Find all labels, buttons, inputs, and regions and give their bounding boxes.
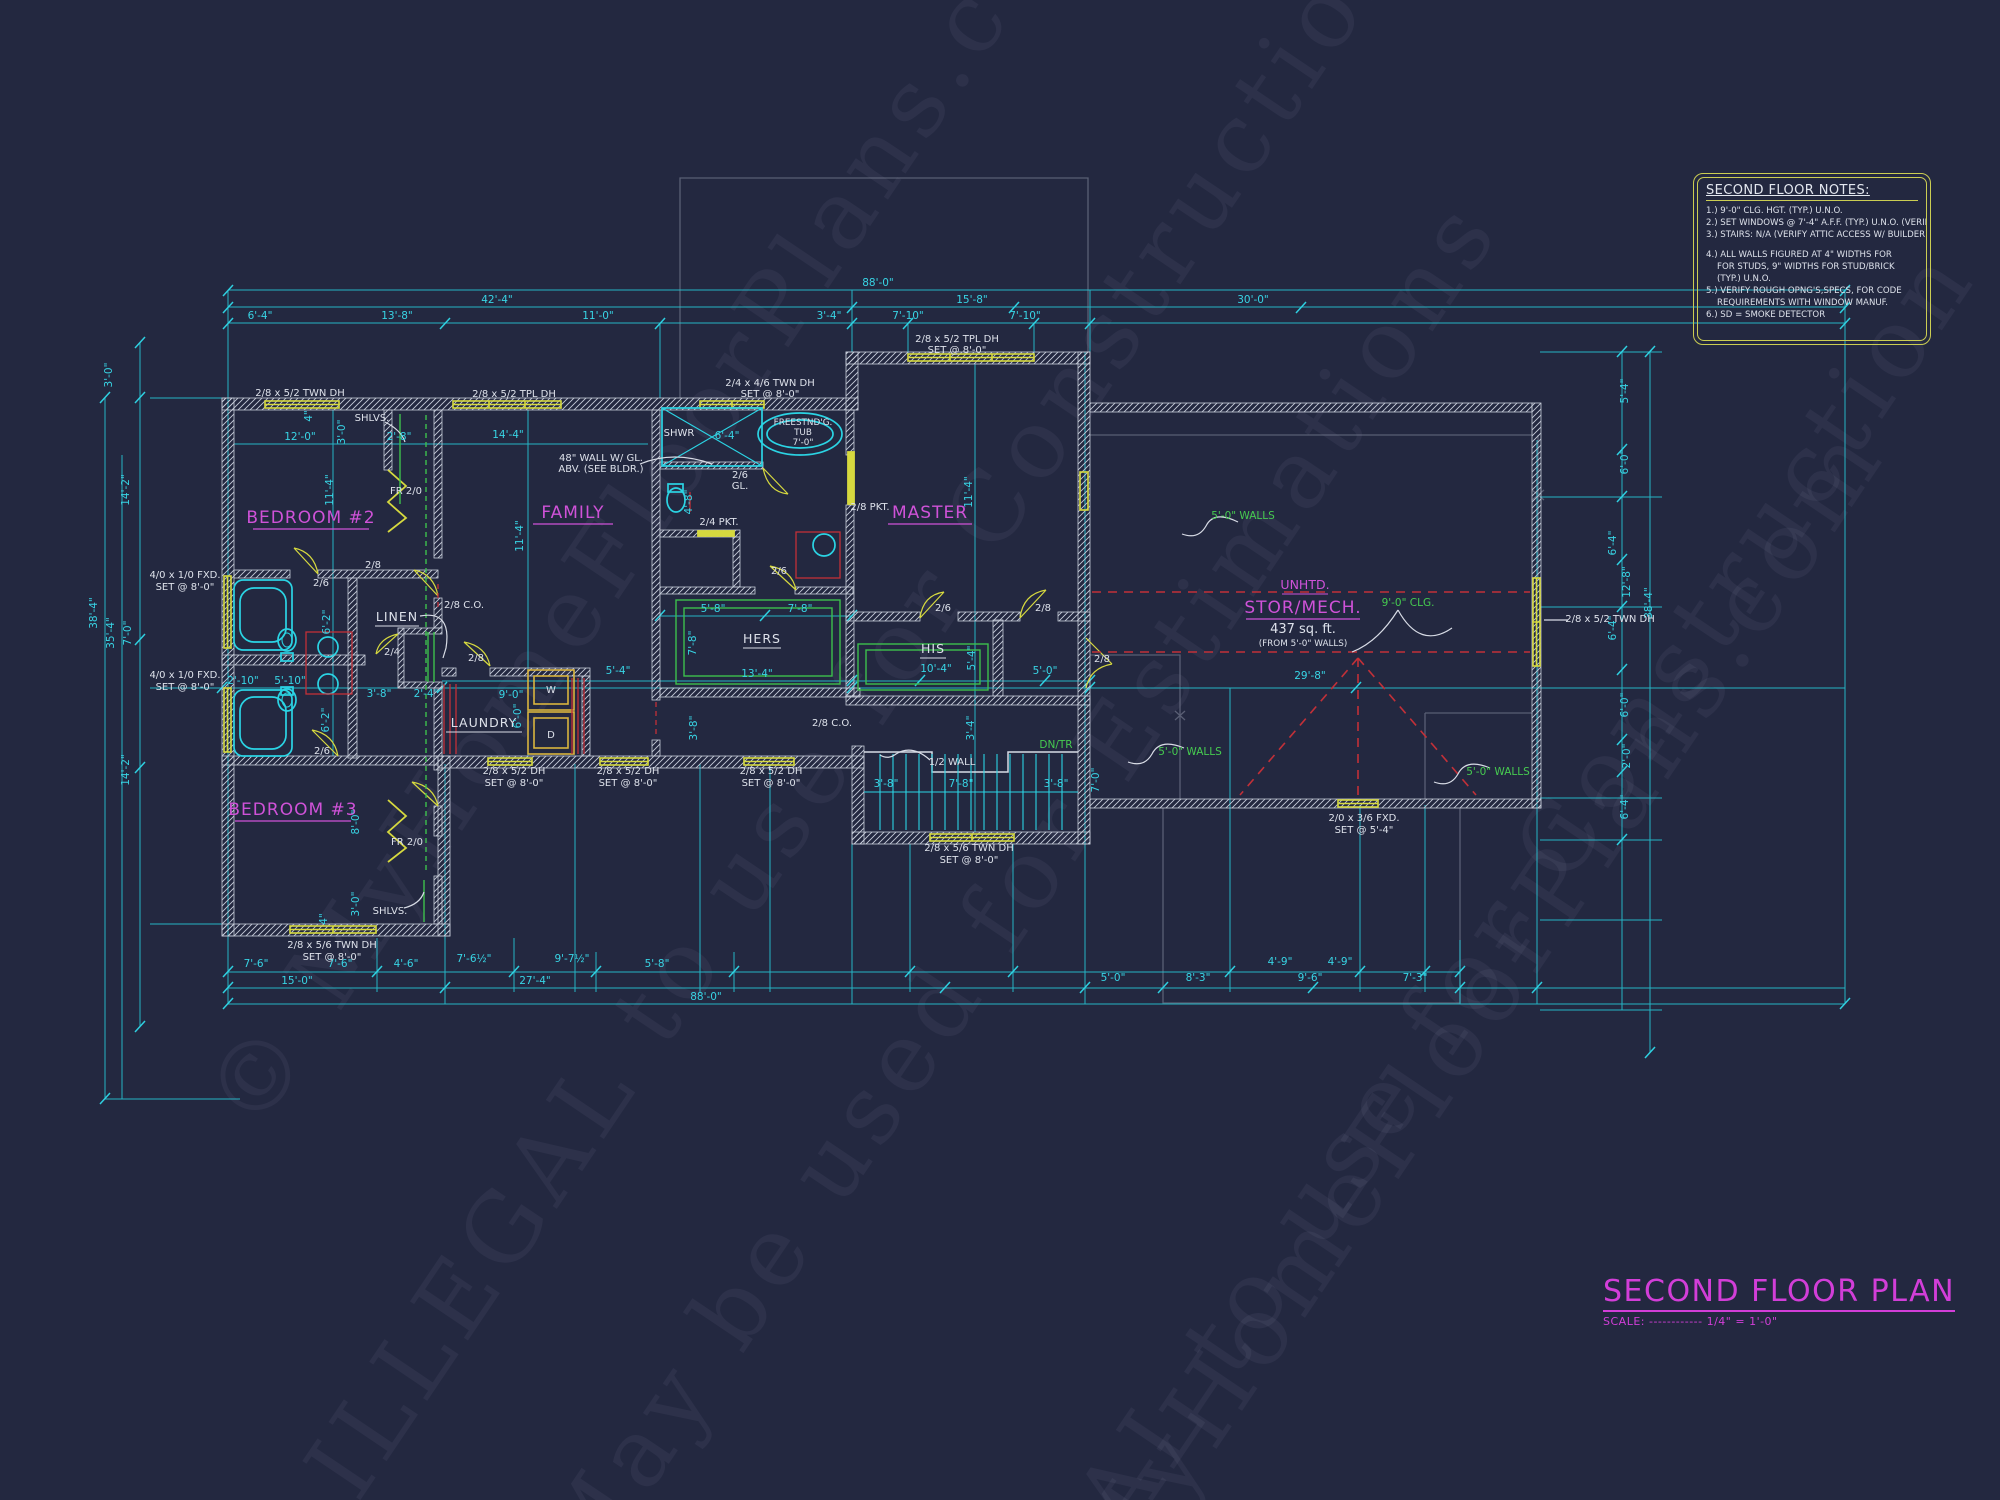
dim-label: 5'-4" xyxy=(1619,379,1631,404)
dim-label: 88'-0" xyxy=(690,991,722,1003)
note-line: REQUIREMENTS WITH WINDOW MANUF. xyxy=(1706,297,1918,309)
room-label: STOR/MECH. xyxy=(1244,598,1361,618)
dim-label: 5'-8" xyxy=(701,603,726,615)
doors-glyphs xyxy=(294,452,1112,862)
room-label: HERS xyxy=(743,631,781,646)
door-label: 2/8 C.O. xyxy=(812,718,852,729)
dim-label: 4'-9" xyxy=(1328,956,1353,968)
room-label: HIS xyxy=(921,641,945,656)
dim-label: 6'-4" xyxy=(715,430,740,442)
dim-label: 38'-4" xyxy=(88,597,100,629)
dim-label: 5'-10" xyxy=(274,675,306,687)
window-label: 2/8 x 5/2 TPL DH xyxy=(472,389,556,400)
window-label: SET @ 8'-0" xyxy=(599,778,658,789)
window-label: SET @ 8'-0" xyxy=(928,345,987,356)
door-label: 2/6 xyxy=(314,746,330,757)
dim-label: 9'-7½" xyxy=(554,953,589,965)
door-label: 2/8 xyxy=(1035,603,1051,614)
dim-label: 8'-0" xyxy=(350,810,362,835)
dim-label: 2'-4" xyxy=(414,688,439,700)
second-floor-notes-box: SECOND FLOOR NOTES: 1.) 9'-0" CLG. HGT. … xyxy=(1693,173,1931,345)
window-label: SET @ 8'-0" xyxy=(742,778,801,789)
dim-label: 6'-4" xyxy=(1619,795,1631,820)
window-label: 4/0 x 1/0 FXD. xyxy=(149,670,220,681)
annotation: 5'-0" WALLS xyxy=(1466,766,1530,778)
annotation: 1/2 WALL xyxy=(929,757,976,768)
note-line: 3.) STAIRS: N/A (VERIFY ATTIC ACCESS W/ … xyxy=(1706,229,1918,241)
door-label: 2/8 xyxy=(468,653,484,664)
annotation: SHWR xyxy=(664,428,695,439)
dim-label: 3'-8" xyxy=(688,716,700,741)
window-label: 2/8 x 5/2 TPL DH xyxy=(915,334,999,345)
dim-label: 11'-4" xyxy=(963,476,975,508)
annotation: 9'-0" CLG. xyxy=(1382,597,1435,609)
door-label: 2/6 xyxy=(732,470,748,481)
window-label: 2/8 x 5/2 DH xyxy=(740,766,803,777)
window-label: SET @ 8'-0" xyxy=(156,582,215,593)
dim-label: 9'-0" xyxy=(499,689,524,701)
dim-label: 5'-0" xyxy=(1101,972,1126,984)
title-block: SECOND FLOOR PLAN SCALE: ------------ 1/… xyxy=(1603,1274,1955,1328)
door-label: 2/6 xyxy=(313,578,329,589)
door-label: 2/8 xyxy=(365,560,381,571)
dim-label: 11'-4" xyxy=(324,474,336,506)
notes-inner-border: SECOND FLOOR NOTES: 1.) 9'-0" CLG. HGT. … xyxy=(1697,177,1927,341)
text-layer: BEDROOM #2 FAMILY MASTER BEDROOM #3 LAUN… xyxy=(88,277,1655,1003)
door-label: 2/6 xyxy=(771,566,787,577)
dim-label: 15'-8" xyxy=(956,294,988,306)
dim-label: 13'-8" xyxy=(381,310,413,322)
dim-label: 12'-0" xyxy=(284,431,316,443)
dim-label: 7'-8" xyxy=(687,631,699,656)
window-label: 2/8 x 5/6 TWN DH xyxy=(287,940,377,951)
door-label: FR 2/0 xyxy=(390,486,422,497)
dim-label: 3'-0" xyxy=(103,363,115,388)
dim-label: 4" xyxy=(318,913,330,925)
dim-label: 6'-0" xyxy=(1619,450,1631,475)
dim-label: 7'-8" xyxy=(949,778,974,790)
dim-label: 5'-4" xyxy=(606,665,631,677)
dim-label: 35'-4" xyxy=(105,617,117,649)
room-area-note: (FROM 5'-0" WALLS) xyxy=(1259,639,1348,649)
dim-label: 4'-8" xyxy=(683,490,695,515)
note-line: FOR STUDS, 9" WIDTHS FOR STUD/BRICK xyxy=(1706,261,1918,273)
dim-label: 5'-4" xyxy=(966,646,978,671)
door-label: 2/8 PKT. xyxy=(850,502,889,513)
dim-label: 3'-8" xyxy=(874,778,899,790)
dim-label: 6'-2" xyxy=(320,708,332,733)
annotation: TUB xyxy=(793,428,812,438)
door-label: GL. xyxy=(732,481,749,492)
note-line: (TYP.) U.N.O. xyxy=(1706,273,1918,285)
room-label: MASTER xyxy=(892,503,968,523)
dim-label: 11'-4" xyxy=(514,520,526,552)
washer-label: W xyxy=(546,685,556,696)
dim-label: 9'-6" xyxy=(1298,972,1323,984)
dim-label: 13'-4" xyxy=(741,668,773,680)
annotation: FREESTND'G. xyxy=(774,418,833,428)
dim-label: 6'-4" xyxy=(248,310,273,322)
room-label: BEDROOM #3 xyxy=(228,800,357,820)
window-label: 2/0 x 3/6 FXD. xyxy=(1328,813,1399,824)
dim-label: 7'-6½" xyxy=(456,953,491,965)
dim-label: 7'-10" xyxy=(1009,310,1041,322)
annotation: 48" WALL W/ GL. xyxy=(559,453,643,464)
window-label: SET @ 8'-0" xyxy=(485,778,544,789)
door-label: FR 2/0 xyxy=(391,837,423,848)
dim-label: 5'-8" xyxy=(645,958,670,970)
dim-label: 5'-0" xyxy=(1033,665,1058,677)
window-label: 2/8 x 5/2 TWN DH xyxy=(255,388,345,399)
annotation: 5'-0" WALLS xyxy=(1158,746,1222,758)
window-label: SET @ 8'-0" xyxy=(940,855,999,866)
dim-label: 6'-0" xyxy=(1619,693,1631,718)
dim-label: 6'-2" xyxy=(321,610,333,635)
dim-label: 6'-4" xyxy=(1607,531,1619,556)
door-label: 2/6 xyxy=(935,603,951,614)
dim-label: 14'-2" xyxy=(120,474,132,506)
blueprint-canvas: © MyHomeFloorPlans.com ILLEGAL to use fo… xyxy=(0,0,2000,1500)
note-line: 6.) SD = SMOKE DETECTOR xyxy=(1706,309,1918,321)
room-label: FAMILY xyxy=(541,503,604,523)
dim-label: 42'-4" xyxy=(481,294,513,306)
window-label: 4/0 x 1/0 FXD. xyxy=(149,570,220,581)
dim-label: 7'-0" xyxy=(122,621,134,646)
sheet-title: SECOND FLOOR PLAN xyxy=(1603,1274,1955,1312)
dim-label: 11'-0" xyxy=(582,310,614,322)
window-label: SET @ 8'-0" xyxy=(156,682,215,693)
dim-label: 14'-4" xyxy=(492,429,524,441)
room-label: LAUNDRY xyxy=(451,715,517,730)
room-label: UNHTD. xyxy=(1280,577,1329,592)
dim-label: 3'-0" xyxy=(350,892,362,917)
dim-label: 30'-0" xyxy=(1237,294,1269,306)
dim-label: 12'-8" xyxy=(1621,566,1633,598)
dim-label: 2'-0" xyxy=(1621,744,1633,769)
note-line: 1.) 9'-0" CLG. HGT. (TYP.) U.N.O. xyxy=(1706,205,1918,217)
annotation: SHLVS. xyxy=(373,906,408,917)
note-line: 2.) SET WINDOWS @ 7'-4" A.F.F. (TYP.) U.… xyxy=(1706,217,1918,229)
window-label: SET @ 5'-4" xyxy=(1335,825,1394,836)
dim-label: 3'-4" xyxy=(965,716,977,741)
dim-label: 14'-2" xyxy=(120,754,132,786)
window-label: 2/8 x 5/6 TWN DH xyxy=(924,843,1014,854)
room-label: LINEN xyxy=(376,609,418,624)
dim-label: 88'-0" xyxy=(862,277,894,289)
window-label: 2/8 x 5/2 DH xyxy=(597,766,660,777)
stairs-label: DN/TR xyxy=(1039,739,1072,751)
window-label: 2/4 x 4/6 TWN DH xyxy=(725,378,815,389)
dim-label: 3'-8" xyxy=(367,688,392,700)
window-label: 2/8 x 5/2 TWN DH xyxy=(1565,614,1655,625)
dim-label: 6'-0" xyxy=(512,704,524,729)
note-line: 5.) VERIFY ROUGH OPNG'S,SPECS, FOR CODE xyxy=(1706,285,1918,297)
annotation: ABV. (SEE BLDR.) xyxy=(558,464,643,475)
annotation: SHLVS. xyxy=(355,413,390,424)
notes-title: SECOND FLOOR NOTES: xyxy=(1706,183,1918,201)
annotation: 5'-0" WALLS xyxy=(1211,510,1275,522)
dim-label: 7'-0" xyxy=(1090,768,1102,793)
dim-label: 3'-0" xyxy=(336,420,348,445)
dim-label: 10'-4" xyxy=(920,663,952,675)
dim-label: 15'-0" xyxy=(281,975,313,987)
dim-label: 29'-8" xyxy=(1294,670,1326,682)
dim-label: 7'-3" xyxy=(1403,972,1428,984)
dim-label: 4'-9" xyxy=(1268,956,1293,968)
door-label: 2/4 PKT. xyxy=(699,517,738,528)
dim-label: 4" xyxy=(303,410,315,422)
sheet-scale: SCALE: ------------ 1/4" = 1'-0" xyxy=(1603,1315,1955,1328)
door-label: 2/8 C.O. xyxy=(444,600,484,611)
annotation: 7'-0" xyxy=(793,438,814,448)
dim-label: 4'-6" xyxy=(394,958,419,970)
dim-label: 3'-4" xyxy=(817,310,842,322)
note-line: 4.) ALL WALLS FIGURED AT 4" WIDTHS FOR xyxy=(1706,249,1918,261)
door-label: 2/4 xyxy=(384,647,400,658)
room-area-label: 437 sq. ft. xyxy=(1270,622,1336,637)
dim-label: 2'-10" xyxy=(227,675,259,687)
dryer-label: D xyxy=(547,730,555,741)
washer-dryer xyxy=(528,670,574,754)
dim-label: 27'-4" xyxy=(519,975,551,987)
dim-label: 7'-10" xyxy=(892,310,924,322)
dim-label: 7'-6" xyxy=(244,958,269,970)
room-label: BEDROOM #2 xyxy=(246,508,375,528)
window-label: 2/8 x 5/2 DH xyxy=(483,766,546,777)
dim-label: 3'-8" xyxy=(1044,778,1069,790)
window-label: SET @ 8'-0" xyxy=(303,952,362,963)
dim-label: 7'-8" xyxy=(788,603,813,615)
dim-label: 8'-3" xyxy=(1186,972,1211,984)
window-label: SET @ 8'-0" xyxy=(741,389,800,400)
door-label: 2/8 xyxy=(1094,654,1110,665)
dim-label: 2'-8" xyxy=(387,431,412,443)
